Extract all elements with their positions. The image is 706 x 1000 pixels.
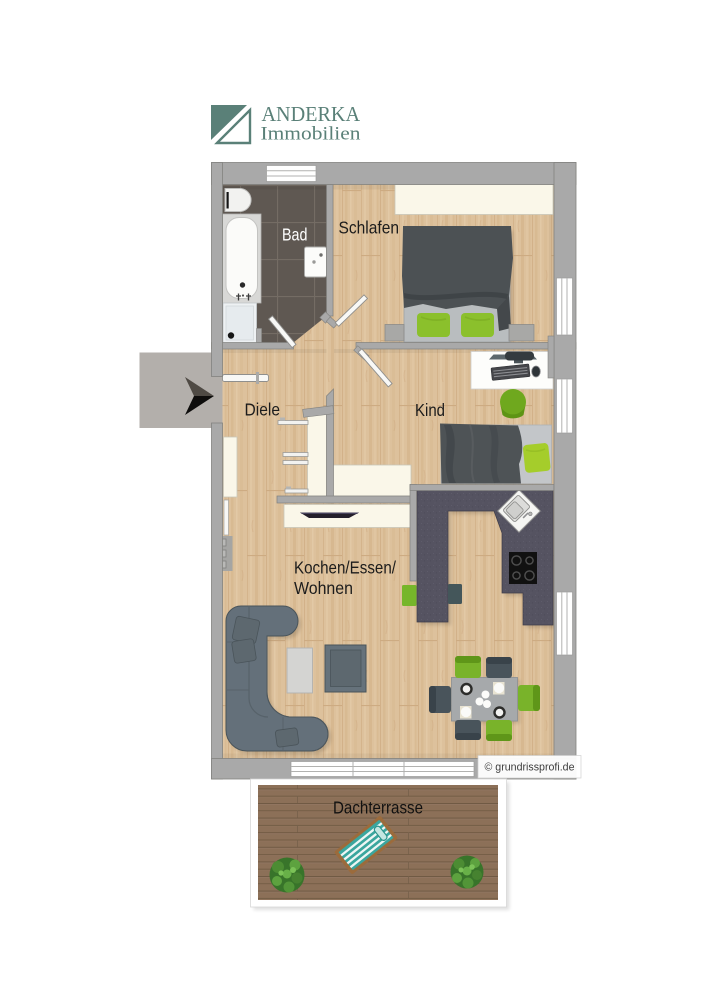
- svg-text:Kochen/Essen/: Kochen/Essen/: [294, 558, 396, 578]
- svg-text:Wohnen: Wohnen: [294, 578, 353, 598]
- svg-text:Schlafen: Schlafen: [339, 218, 400, 238]
- svg-text:Bad: Bad: [282, 225, 308, 245]
- svg-text:Kind: Kind: [415, 400, 445, 420]
- svg-text:Dachterrasse: Dachterrasse: [333, 798, 423, 818]
- svg-text:Immobilien: Immobilien: [261, 125, 361, 145]
- svg-text:Diele: Diele: [245, 400, 281, 420]
- svg-text:ANDERKA: ANDERKA: [262, 102, 361, 126]
- svg-text:© grundrissprofi.de: © grundrissprofi.de: [485, 762, 575, 774]
